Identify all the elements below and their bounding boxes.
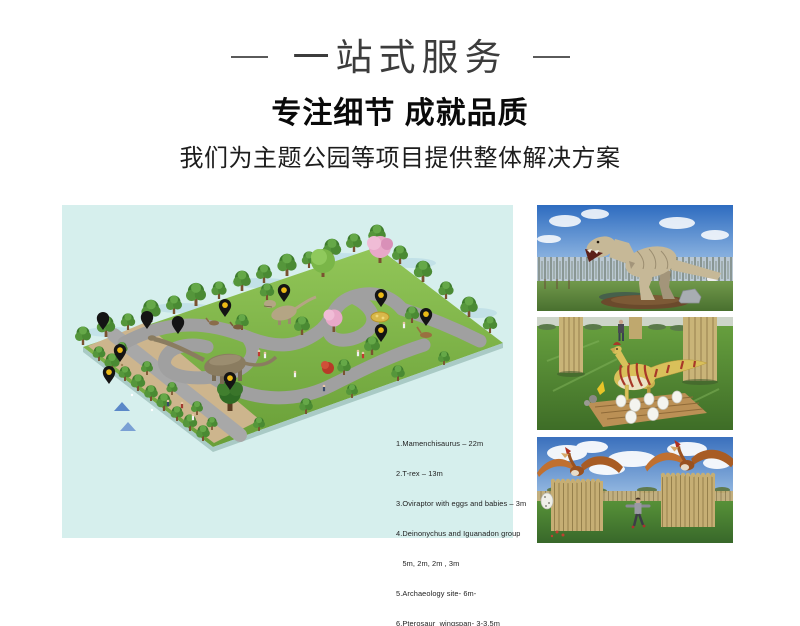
title-dash-left: [231, 56, 268, 58]
log-pillar-small: [629, 317, 642, 339]
spotted-egg: [541, 493, 553, 509]
promo-page: 一站式服务 专注细节 成就品质 我们为主题公园等项目提供整体解决方案: [0, 0, 800, 626]
rock: [589, 395, 597, 403]
eye: [597, 241, 600, 244]
plan-legend: 1.Mamenchisaurus – 22m 2.T-rex – 13m 3.O…: [396, 419, 526, 626]
page-tagline: 我们为主题公园等项目提供整体解决方案: [0, 138, 800, 173]
photo-pterosaurs: [537, 437, 733, 543]
legend-line: 4.Deinonychus and Iguanadon group: [396, 529, 526, 539]
page-subtitle: 专注细节 成就品质: [0, 88, 800, 132]
pterosaur-photo-illustration: [537, 437, 733, 543]
log-pillar-left: [557, 317, 585, 377]
legend-line: 6.Pterosaur wingspan- 3-3.5m: [396, 619, 526, 626]
legend-line: 3.Oviraptor with eggs and babies – 3m: [396, 499, 526, 509]
legend-line: 5.Archaeology site- 6m-: [396, 589, 526, 599]
rock-small: [584, 400, 590, 406]
legend-line: 5m, 2m, 2m , 3m: [396, 559, 526, 569]
page-title-row: 一站式服务: [0, 34, 800, 80]
log-pillar-right: [682, 317, 718, 385]
palisade-tower-left: [551, 479, 603, 531]
legend-line: 1.Mamenchisaurus – 22m: [396, 439, 526, 449]
legend-line: 2.T-rex – 13m: [396, 469, 526, 479]
title-dash-right: [533, 56, 570, 58]
photo-oviraptor-eggs: [537, 317, 733, 430]
park-plan-image: 1.Mamenchisaurus – 22m 2.T-rex – 13m 3.O…: [62, 205, 513, 538]
oviraptor-photo-illustration: [537, 317, 733, 430]
page-title: 一站式服务: [293, 39, 508, 76]
photo-trex-model: [537, 205, 733, 311]
trex-photo-illustration: [537, 205, 733, 311]
palisade-tower-right: [661, 473, 715, 527]
golden-dinosaur-nest: [371, 312, 389, 322]
